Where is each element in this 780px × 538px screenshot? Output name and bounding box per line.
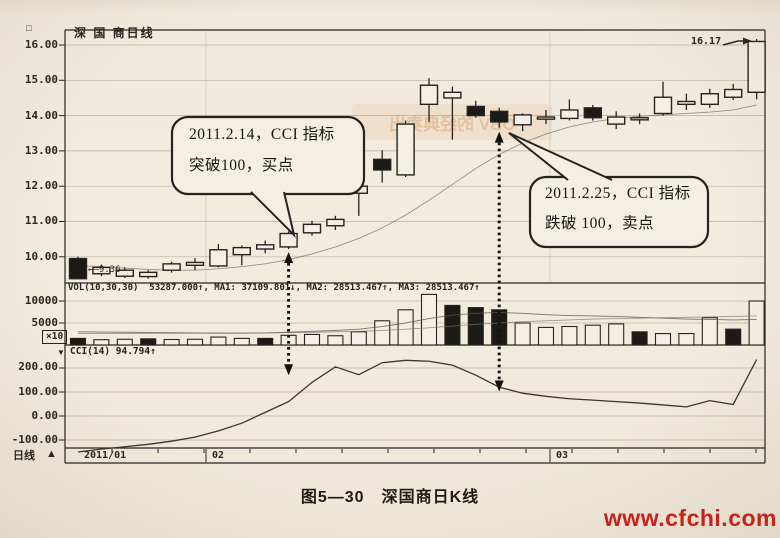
buy-callout-line2: 突破100，买点 [189,158,294,174]
cci-axis-label: 200.00 [8,361,58,372]
period-marker-icon: ▲ [46,449,57,460]
cci-pointer-icon: ▼ [57,349,65,357]
last-high-tag: 16.17 [691,37,721,47]
buy-callout-line1: 2011.2.14，CCI 指标 [189,127,335,143]
price-axis-label: 16.00 [8,39,58,50]
price-axis-label: 10.00 [8,251,58,262]
cci-axis-label: -100.00 [8,434,58,445]
cci-axis-label: 100.00 [8,386,58,397]
volume-axis-label: 10000 [8,295,58,306]
figure-caption: 图5—30 深国商日K线 [301,490,479,506]
price-axis-label: 13.00 [8,145,58,156]
cci-line [78,360,757,452]
date-axis-label: 2011/01 [84,451,126,461]
price-axis-label: 15.00 [8,74,58,85]
cci-axis-label: 0.00 [8,410,58,421]
first-low-tag: ←–9.36 [88,266,121,275]
price-axis-label: 11.00 [8,215,58,226]
volume-unit-badge: ×10 [42,330,67,344]
price-axis-label: 12.00 [8,180,58,191]
cci-indicator-label: CCI(14) 94.794↑ [70,347,156,357]
period-label: 日线 [13,450,35,461]
vol-indicator-label: VOL(10,30,30) 53287.000↑, MA1: 37109.801… [68,284,480,293]
date-axis-label: 02 [212,451,224,461]
volume-axis-label: 5000 [8,317,58,328]
volume-bars [71,294,765,345]
chart-title: 深 国 商日线 [74,27,155,39]
corner-glyph-icon: □ [26,24,31,33]
book-page: OBV 的经典卖出 □ 深 国 商日线 16.00 15.00 14.00 13… [0,0,780,538]
date-axis-label: 03 [556,451,568,461]
sell-callout-line2: 跌破 100，卖点 [545,216,654,232]
watermark: www.cfchi.com [604,507,777,530]
price-axis-label: 14.00 [8,110,58,121]
sell-callout-line1: 2011.2.25，CCI 指标 [545,186,691,202]
